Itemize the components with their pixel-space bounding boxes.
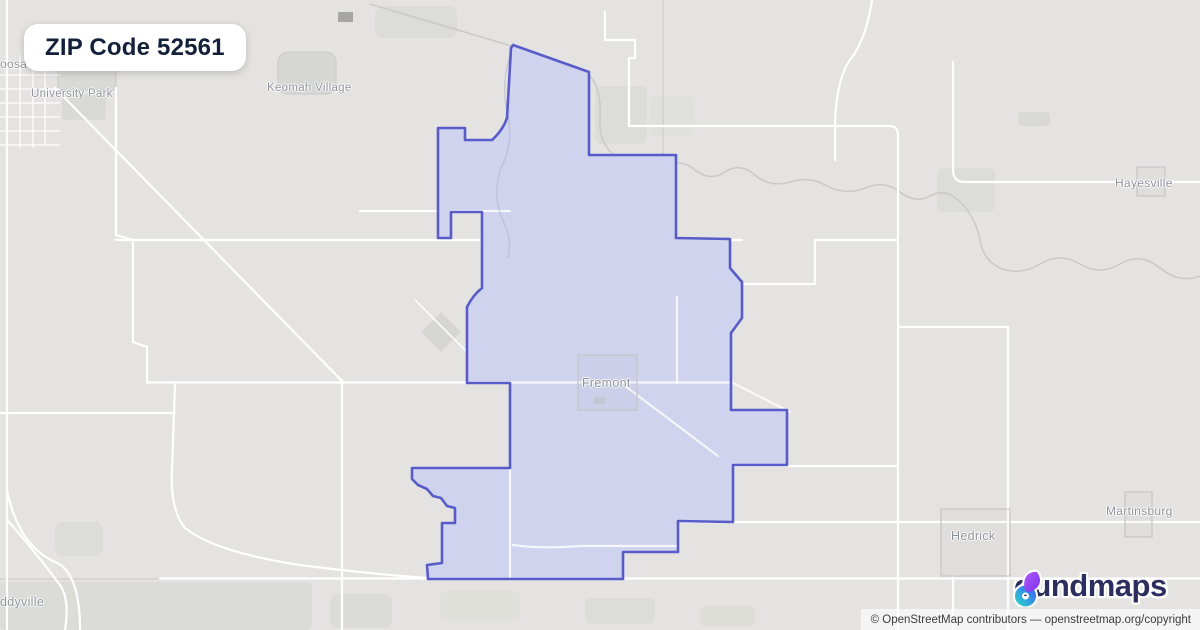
- building-footprint: [594, 397, 605, 404]
- base-map-svg: [0, 0, 1200, 630]
- zip-title-text: ZIP Code 52561: [45, 34, 225, 61]
- place-label-oosa: oosa: [0, 57, 27, 71]
- place-label-hedrick: Hedrick: [951, 529, 995, 543]
- attribution-copyright-link[interactable]: openstreetmap.org/copyright: [1045, 614, 1191, 626]
- attribution-text: © OpenStreetMap contributors —: [871, 614, 1045, 626]
- map-canvas[interactable]: oosaUniversity ParkKeomah VillageHayesvi…: [0, 0, 1200, 630]
- place-label-university-park: University Park: [31, 88, 113, 100]
- zip-title-badge: ZIP Code 52561: [24, 24, 246, 71]
- place-label-hayesville: Hayesville: [1115, 176, 1173, 190]
- boundmaps-logo[interactable]: oundmaps: [1013, 569, 1167, 603]
- place-label-martinsburg: Martinsburg: [1106, 504, 1173, 518]
- place-label-keomah-village: Keomah Village: [267, 82, 352, 94]
- place-label-ddyville: ddyville: [0, 595, 44, 609]
- place-label-fremont: Fremont: [582, 376, 631, 390]
- attribution-bar: © OpenStreetMap contributors — openstree…: [861, 609, 1200, 630]
